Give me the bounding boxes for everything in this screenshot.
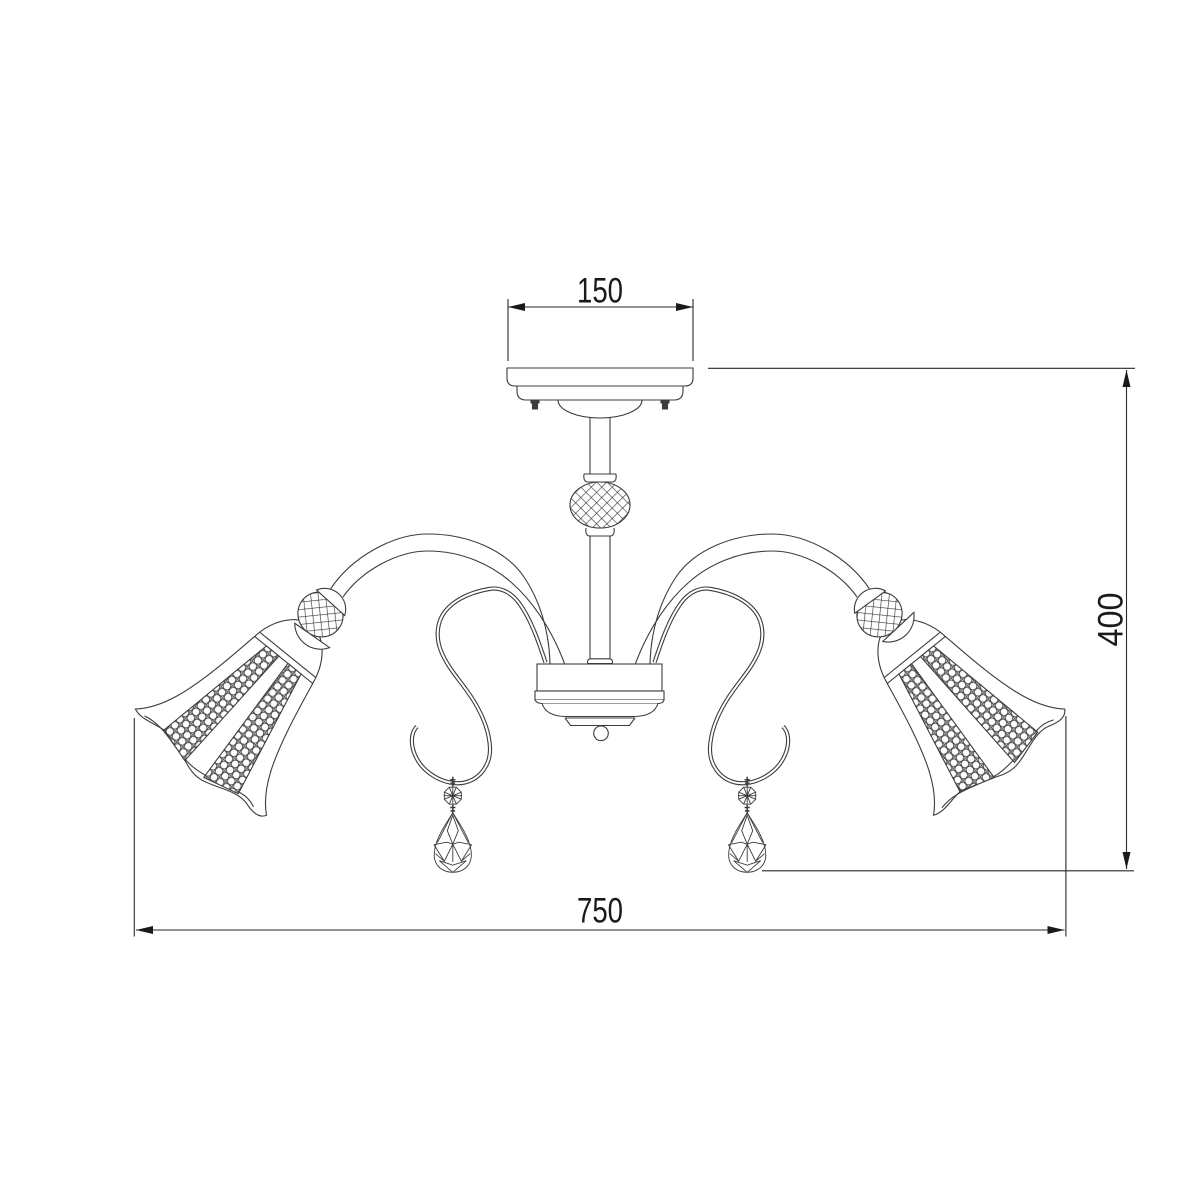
svg-text:750: 750 <box>577 892 623 931</box>
svg-text:400: 400 <box>1092 593 1131 647</box>
svg-text:150: 150 <box>577 272 623 311</box>
